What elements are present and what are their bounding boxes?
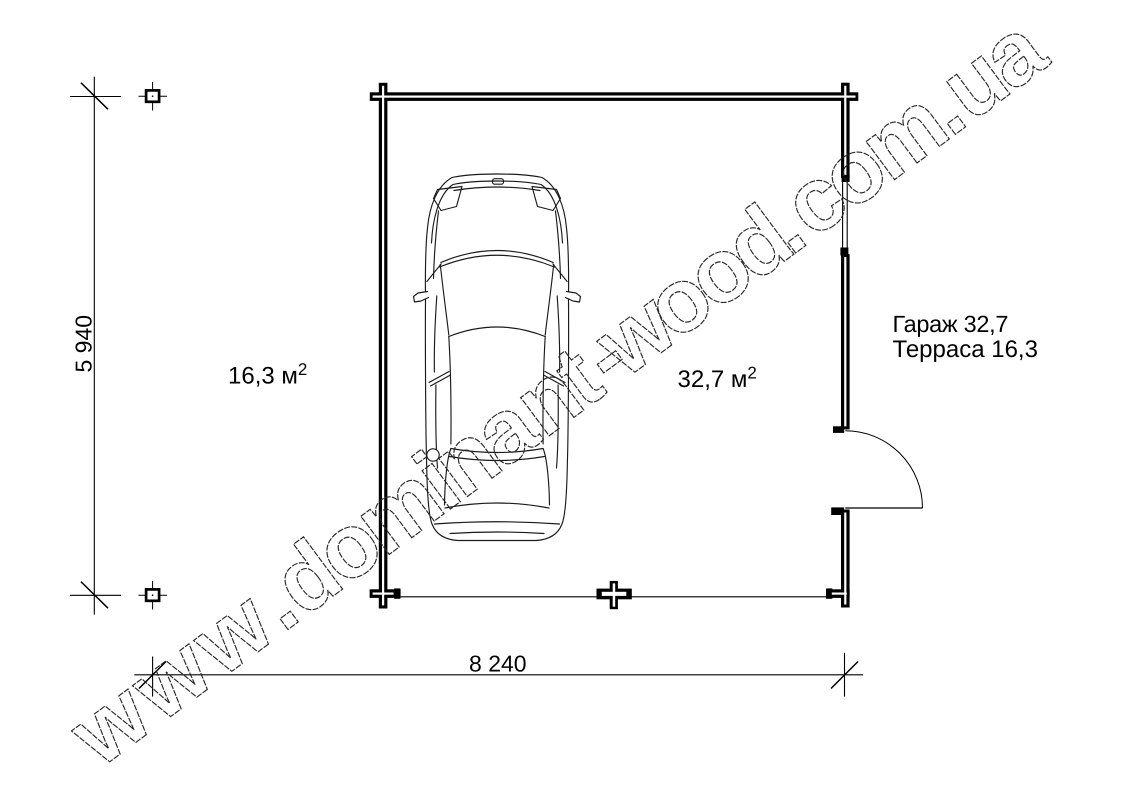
svg-text:Терраса 16,3: Терраса 16,3 [893, 336, 1038, 363]
svg-text:Гараж 32,7: Гараж 32,7 [893, 311, 1009, 337]
svg-text:5 940: 5 940 [70, 315, 96, 373]
svg-text:32,7 м2: 32,7 м2 [678, 364, 757, 394]
svg-text:8 240: 8 240 [469, 651, 527, 677]
svg-text:16,3 м2: 16,3 м2 [228, 360, 307, 390]
